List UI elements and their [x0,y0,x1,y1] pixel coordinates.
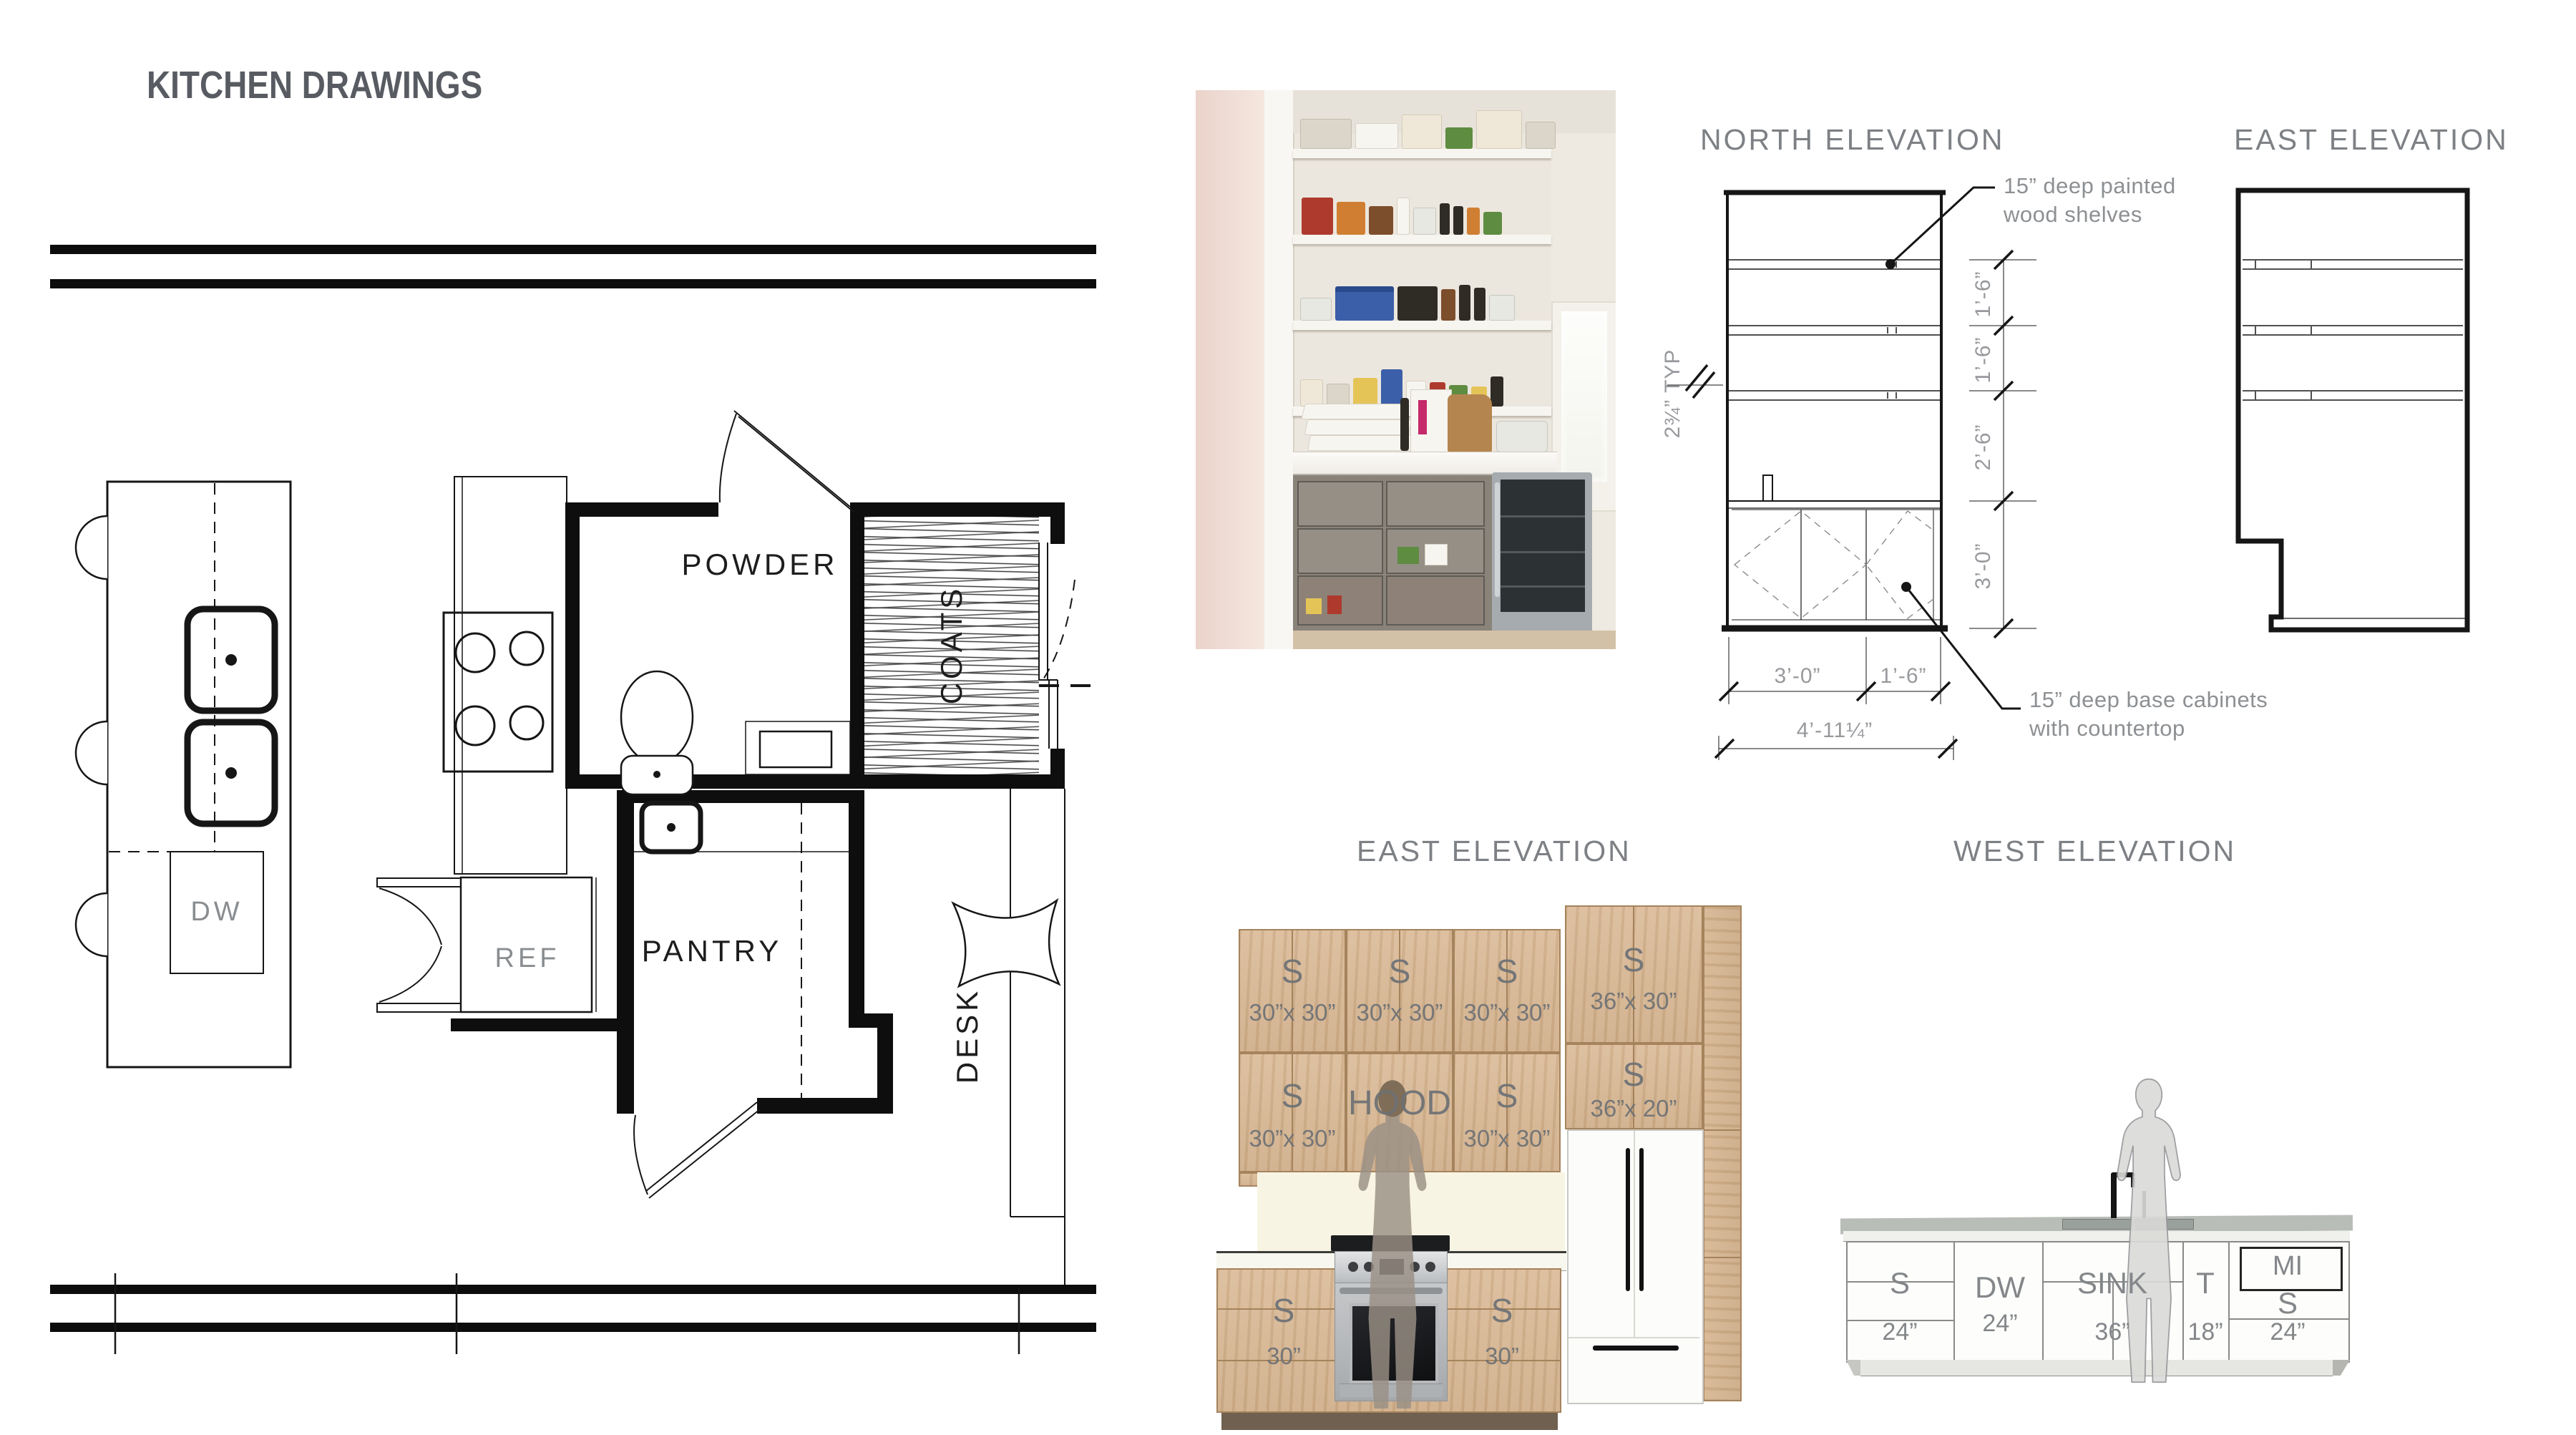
island-toe-side [1846,1360,1860,1376]
island-label: T [2170,1268,2241,1298]
cabinet-label: S [1257,955,1328,988]
floor-plan [50,245,1096,1354]
cabinet-size: 30”x 30” [1450,1127,1564,1150]
tall-end-panel [1703,905,1742,1401]
east-elevation-rendered-title: EAST ELEVATION [1357,835,1631,868]
island-label: S [2252,1288,2323,1318]
photo-floor [1293,631,1616,649]
cabinet-label: S [1598,1058,1669,1091]
upper-cabinet [1239,929,1346,1053]
dim-2-6: 2’-6” [1971,404,1996,490]
dim-total: 4’-11¼” [1777,719,1892,743]
cabinet-size: 30” [1466,1344,1538,1368]
shelf [1293,149,1551,158]
shelf-items-row [1293,185,1560,235]
cabinet-label: S [1248,1294,1319,1327]
cabinet-size: 36”x 20” [1576,1096,1691,1120]
plan-label-desk: DESK [952,957,982,1114]
east-elevation-top-title: EAST ELEVATION [2234,123,2509,157]
cabinet-label: S [1471,955,1543,988]
upper-cabinet [1453,929,1561,1053]
photo-door-casing [1264,90,1294,649]
counter-paper-bag [1448,394,1492,452]
dim-3-0-h: 3’-0” [1755,664,1840,689]
west-elevation-title: WEST ELEVATION [1953,835,2236,868]
fridge [1567,1129,1704,1404]
plan-label-dw: DW [174,898,260,925]
island-label: MI [2252,1252,2323,1280]
photo-left-wall [1196,90,1264,649]
pantry-photo [1196,90,1616,649]
dim-1-6-b: 1’-6” [1971,317,1996,403]
counter-box [1410,389,1452,452]
cabinet-size: 30”x 30” [1235,1001,1350,1024]
dim-1-6-h: 1’-6” [1860,664,1946,689]
note-shelves: 15” deep painted wood shelves [2004,172,2182,230]
east-elevation-rendered: S 30”x 30” S 30”x 30” S 30”x 30” S 30”x … [1207,899,1742,1435]
cabinet-label: S [1598,943,1669,976]
island-label: SINK [2068,1268,2157,1298]
note-base: 15” deep base cabinets with countertop [2029,686,2280,744]
counter-bottle [1400,398,1409,451]
island-label: DW [1961,1273,2039,1303]
island-size: 24” [2252,1320,2323,1344]
counter-bins [1303,404,1410,451]
dim-3-0-v: 3’-0” [1971,523,1996,609]
plan-label-pantry: PANTRY [619,936,805,966]
island-size: 24” [1864,1320,1936,1344]
plan-label-coats: COATS [937,566,967,724]
cabinet-label: S [1466,1294,1538,1327]
hood-label: HOOD [1346,1086,1453,1121]
counter-container [1496,421,1548,452]
island-toe-side [2333,1360,2350,1376]
cabinet-label: S [1364,955,1435,988]
plan-label-powder: POWDER [667,550,853,580]
east-elevation-top-linework [2238,190,2467,630]
cabinet-size: 30” [1248,1344,1319,1368]
shelf [1293,235,1551,244]
island-size: 24” [1961,1311,2039,1336]
island-label: S [1864,1268,1936,1298]
upper-cabinet [1346,929,1453,1053]
dim-typ: 2¾” TYP [1661,336,1685,451]
cabinet-size: 30”x 30” [1342,1001,1457,1024]
island-size: 18” [2170,1320,2241,1344]
cabinet-size: 30”x 30” [1235,1127,1350,1150]
cabinet-size: 30”x 30” [1450,1001,1564,1024]
cabinet-label: S [1257,1079,1328,1112]
north-elevation-title: NORTH ELEVATION [1700,123,2004,157]
plan-label-ref: REF [470,945,585,972]
shelf [1293,321,1551,330]
cabinet-size: 36”x 30” [1576,989,1691,1013]
island-size: 36” [2068,1320,2157,1344]
shelf-items-row [1293,99,1558,149]
shelf-items-row [1293,271,1558,321]
cabinet-label: S [1471,1079,1543,1112]
beverage-fridge [1492,472,1592,633]
west-elevation-rendered: S 24” DW 24” SINK 36” T 18” MI S 24” [1832,1065,2376,1416]
